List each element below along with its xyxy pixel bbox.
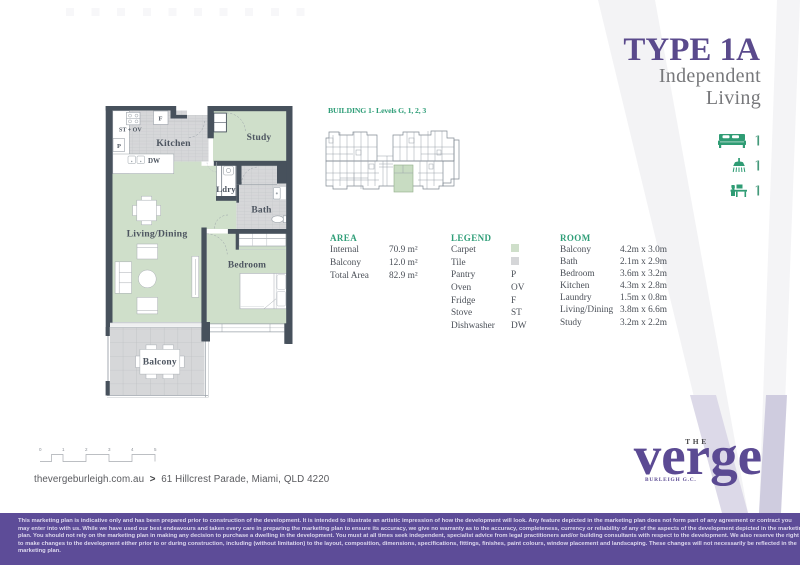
svg-text:3: 3: [108, 447, 111, 452]
svg-text:DW: DW: [148, 157, 160, 165]
svg-text:Bath: Bath: [251, 206, 272, 216]
svg-text:1: 1: [62, 447, 65, 452]
svg-text:0: 0: [39, 447, 42, 452]
svg-text:Bedroom: Bedroom: [228, 261, 266, 271]
svg-text:Living/Dining: Living/Dining: [127, 229, 188, 240]
svg-text:5: 5: [154, 447, 157, 452]
svg-text:4: 4: [131, 447, 134, 452]
svg-text:P: P: [117, 143, 121, 150]
svg-text:Ldry: Ldry: [216, 184, 236, 194]
svg-text:Study: Study: [247, 133, 272, 143]
svg-text:ST + OV: ST + OV: [119, 128, 142, 134]
svg-text:Balcony: Balcony: [143, 358, 177, 368]
svg-text:2: 2: [85, 447, 88, 452]
svg-text:F: F: [159, 116, 163, 123]
svg-text:Kitchen: Kitchen: [156, 138, 191, 149]
